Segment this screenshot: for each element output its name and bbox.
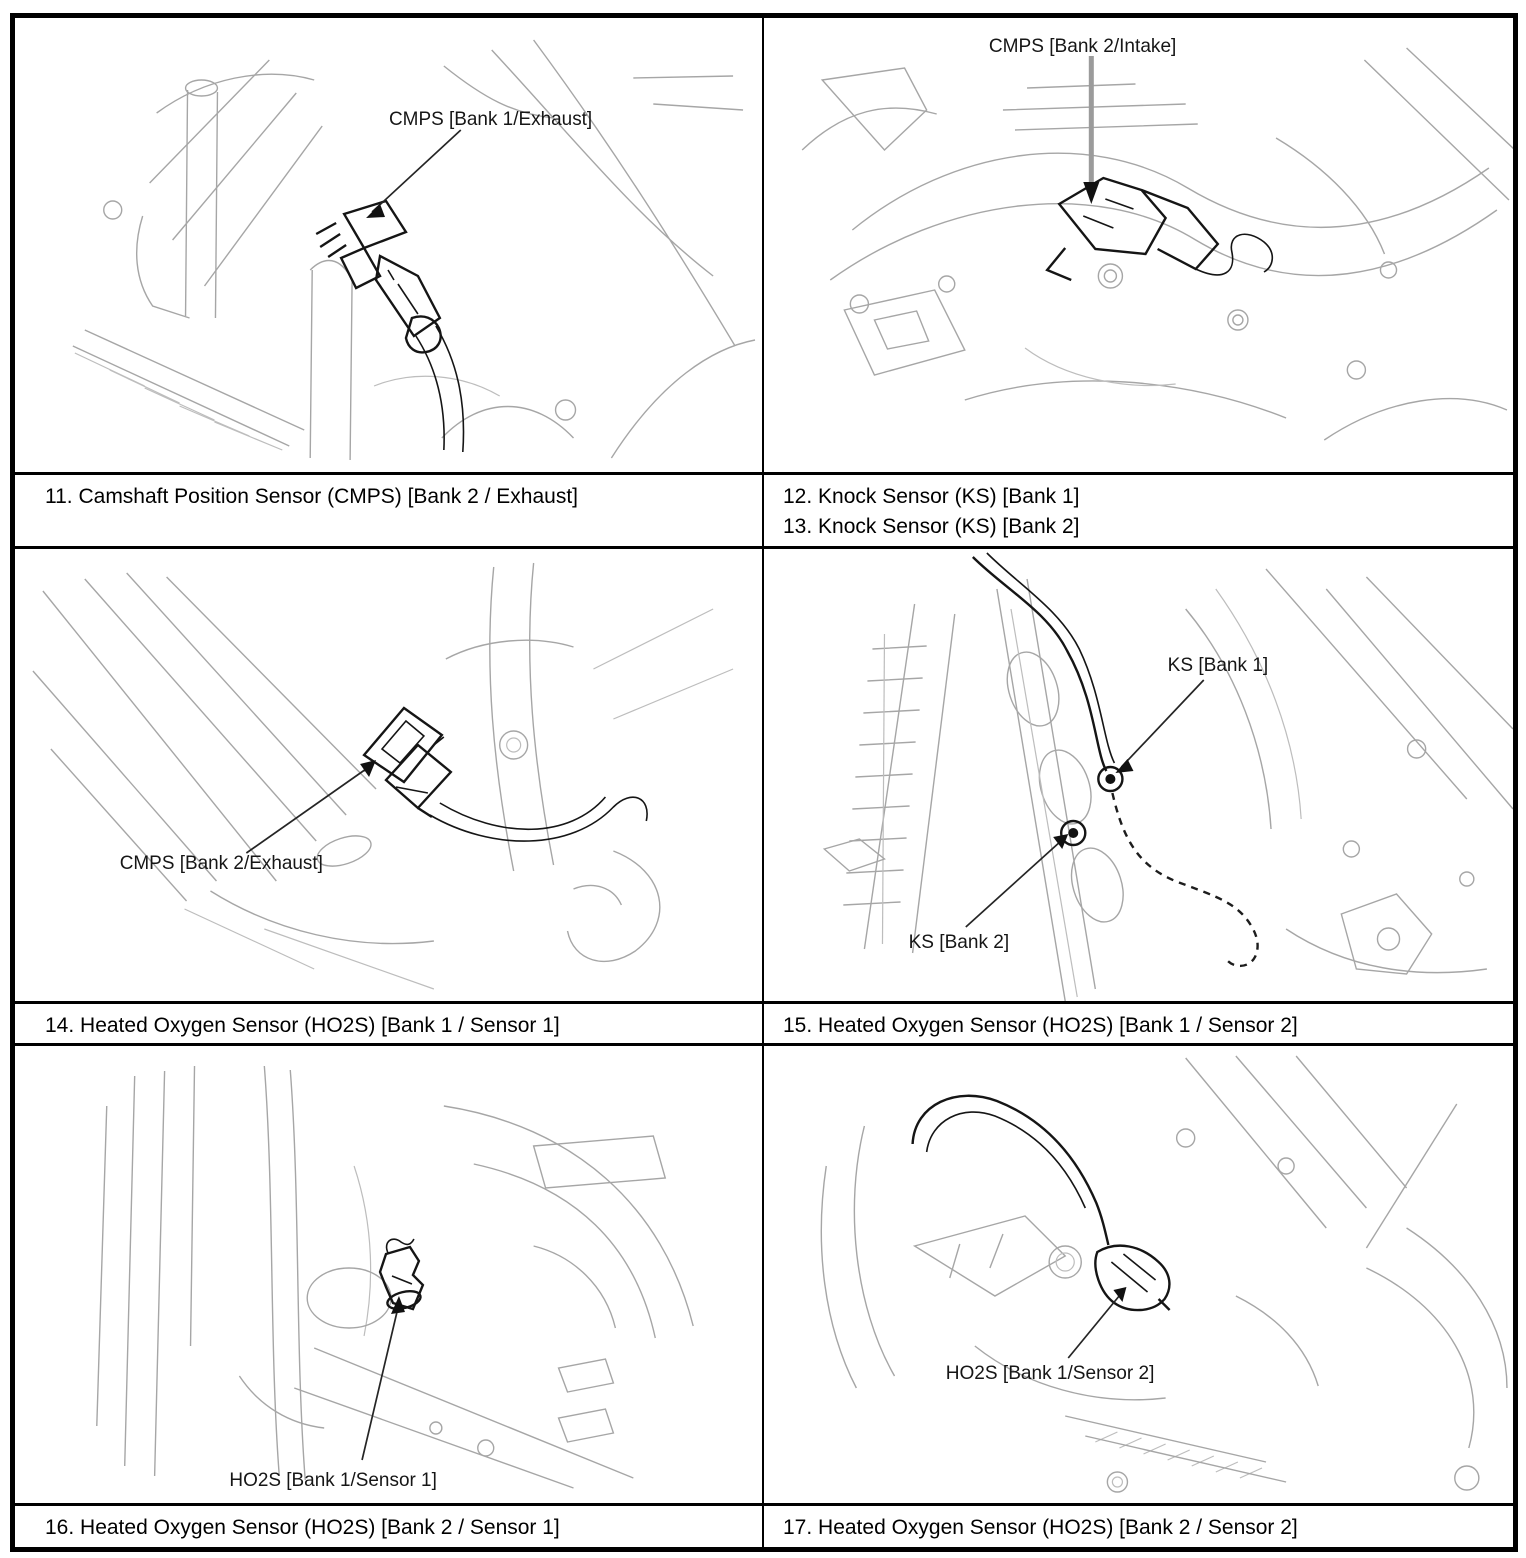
- caption-16: 16. Heated Oxygen Sensor (HO2S) [Bank 2 …: [15, 1503, 764, 1547]
- diagram-label-ks-bank2: KS [Bank 2]: [909, 932, 1010, 953]
- diagram-cell-cmps-bank2-intake: CMPS [Bank 2/Intake]: [764, 18, 1513, 472]
- engine-diagram-cmps-bank2-exhaust: CMPS [Bank 2/Exhaust]: [15, 549, 762, 1001]
- diagram-label-cmps-bank2-intake: CMPS [Bank 2/Intake]: [989, 36, 1176, 57]
- engine-diagram-ho2s-bank1-sensor1: HO2S [Bank 1/Sensor 1]: [15, 1046, 762, 1503]
- diagram-cell-cmps-bank1-exhaust: CMPS [Bank 1/Exhaust]: [15, 18, 764, 472]
- diagram-label-ho2s-bank1-sensor1: HO2S [Bank 1/Sensor 1]: [229, 1470, 436, 1491]
- engine-diagram-cmps-bank1-exhaust: CMPS [Bank 1/Exhaust]: [15, 18, 762, 472]
- diagram-cell-knock-sensors: KS [Bank 1] KS [Bank 2]: [764, 549, 1513, 1001]
- engine-diagram-ho2s-bank1-sensor2: HO2S [Bank 1/Sensor 2]: [764, 1046, 1513, 1503]
- diagram-cell-cmps-bank2-exhaust: CMPS [Bank 2/Exhaust]: [15, 549, 764, 1001]
- caption-12-13: 12. Knock Sensor (KS) [Bank 1] 13. Knock…: [764, 472, 1513, 549]
- caption-15: 15. Heated Oxygen Sensor (HO2S) [Bank 1 …: [764, 1001, 1513, 1046]
- diagram-label-cmps-bank1-exhaust: CMPS [Bank 1/Exhaust]: [389, 109, 592, 130]
- diagram-label-ks-bank1: KS [Bank 1]: [1168, 655, 1269, 676]
- sensor-location-table: CMPS [Bank 1/Exhaust]: [10, 13, 1518, 1552]
- diagram-label-cmps-bank2-exhaust: CMPS [Bank 2/Exhaust]: [120, 853, 323, 874]
- diagram-label-ho2s-bank1-sensor2: HO2S [Bank 1/Sensor 2]: [946, 1363, 1155, 1384]
- caption-14: 14. Heated Oxygen Sensor (HO2S) [Bank 1 …: [15, 1001, 764, 1046]
- diagram-cell-ho2s-bank1-sensor2: HO2S [Bank 1/Sensor 2]: [764, 1046, 1513, 1503]
- caption-15-text: 15. Heated Oxygen Sensor (HO2S) [Bank 1 …: [783, 1014, 1298, 1037]
- caption-16-text: 16. Heated Oxygen Sensor (HO2S) [Bank 2 …: [45, 1516, 560, 1539]
- engine-diagram-knock-sensors: KS [Bank 1] KS [Bank 2]: [764, 549, 1513, 1001]
- caption-17: 17. Heated Oxygen Sensor (HO2S) [Bank 2 …: [764, 1503, 1513, 1547]
- caption-14-text: 14. Heated Oxygen Sensor (HO2S) [Bank 1 …: [45, 1014, 560, 1037]
- caption-13-text: 13. Knock Sensor (KS) [Bank 2]: [783, 512, 1513, 542]
- caption-12-text: 12. Knock Sensor (KS) [Bank 1]: [783, 482, 1513, 512]
- caption-11-text: 11. Camshaft Position Sensor (CMPS) [Ban…: [45, 485, 578, 508]
- caption-17-text: 17. Heated Oxygen Sensor (HO2S) [Bank 2 …: [783, 1516, 1298, 1539]
- caption-11: 11. Camshaft Position Sensor (CMPS) [Ban…: [15, 472, 764, 549]
- engine-diagram-cmps-bank2-intake: CMPS [Bank 2/Intake]: [764, 18, 1513, 472]
- diagram-cell-ho2s-bank1-sensor1: HO2S [Bank 1/Sensor 1]: [15, 1046, 764, 1503]
